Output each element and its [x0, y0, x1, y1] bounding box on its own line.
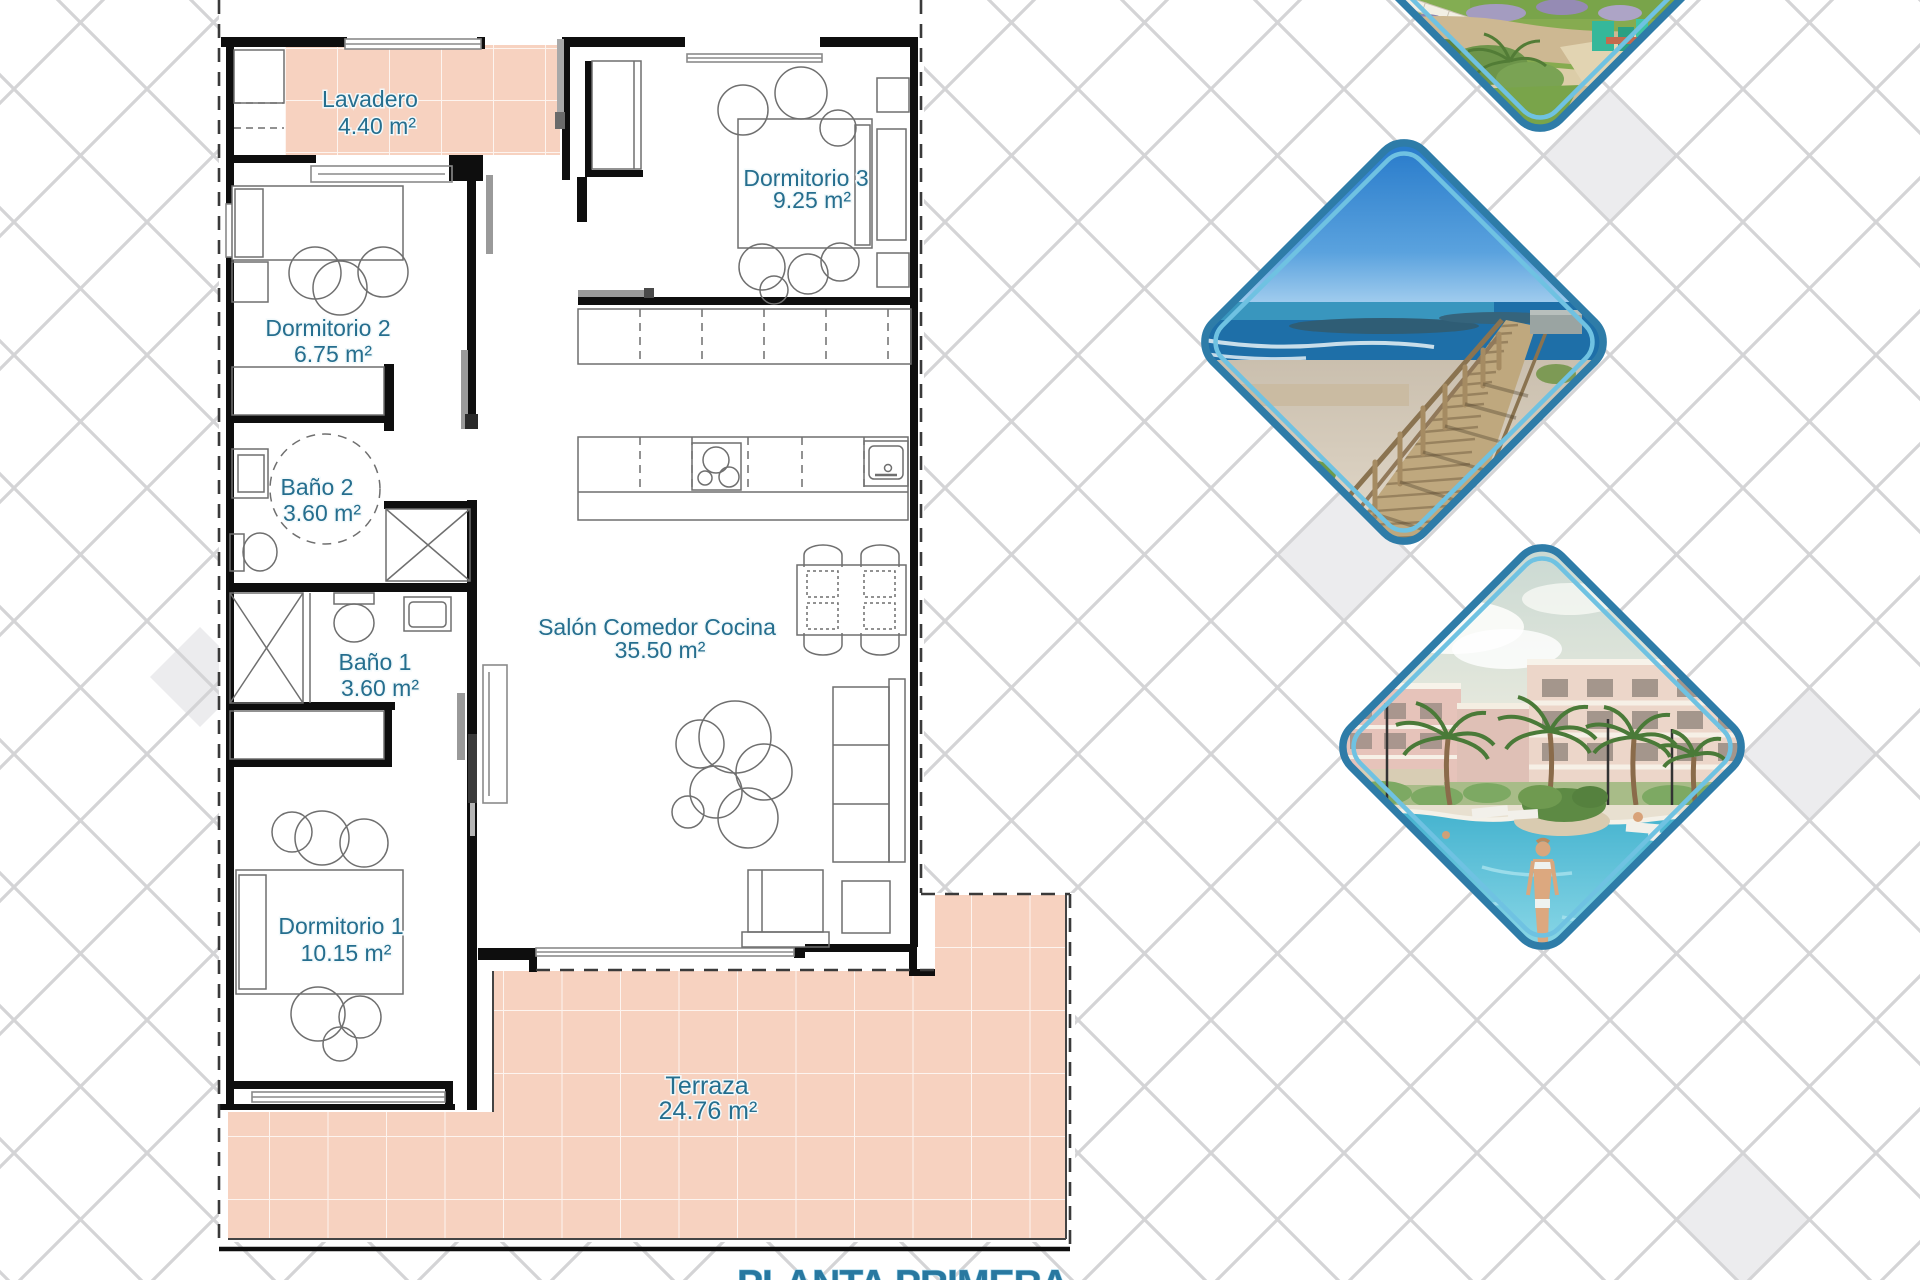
svg-text:Lavadero: Lavadero [322, 86, 418, 112]
svg-text:3.60 m²: 3.60 m² [341, 675, 419, 701]
svg-text:3.60 m²: 3.60 m² [283, 500, 361, 526]
svg-text:Baño 2: Baño 2 [281, 474, 354, 500]
svg-text:6.75 m²: 6.75 m² [294, 341, 372, 367]
svg-text:10.15 m²: 10.15 m² [301, 940, 392, 966]
svg-text:PLANTA PRIMERA: PLANTA PRIMERA [737, 1263, 1069, 1280]
svg-text:35.50 m²: 35.50 m² [615, 637, 706, 663]
svg-text:4.40 m²: 4.40 m² [338, 113, 416, 139]
svg-text:24.76 m²: 24.76 m² [659, 1097, 758, 1125]
svg-text:Dormitorio 2: Dormitorio 2 [265, 315, 390, 341]
svg-text:Terraza: Terraza [665, 1072, 748, 1100]
svg-text:9.25 m²: 9.25 m² [773, 187, 851, 213]
svg-text:Dormitorio 1: Dormitorio 1 [278, 913, 403, 939]
svg-text:Baño 1: Baño 1 [339, 649, 412, 675]
